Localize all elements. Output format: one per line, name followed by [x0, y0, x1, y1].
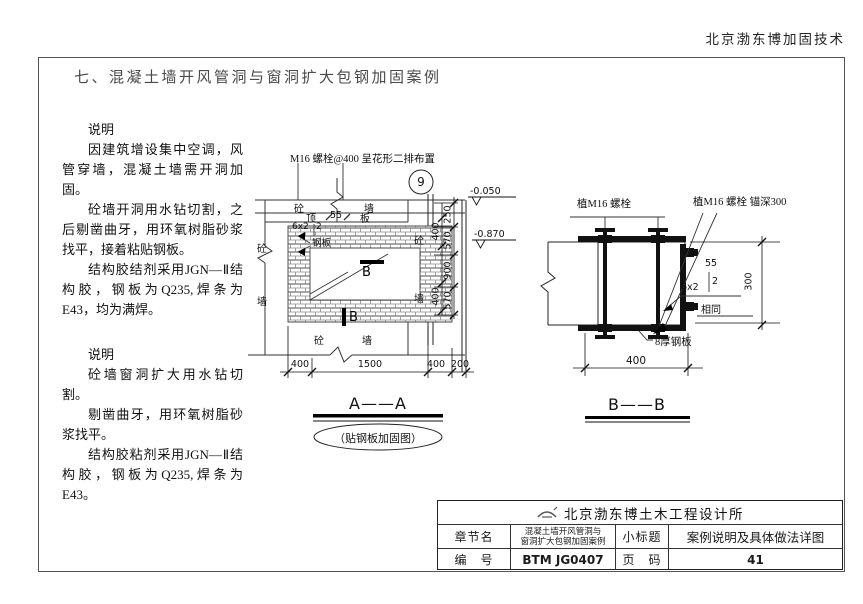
anchor-bolt-note-right: 植M16 螺栓 锚深300: [693, 194, 786, 209]
grid-bubble-9: 9: [414, 175, 428, 189]
section-b-letter-top: B: [362, 265, 371, 280]
plate-thickness-note: 8厚钢板: [655, 334, 692, 349]
section-b-title-underline: [585, 416, 690, 422]
break-line-left: [541, 242, 555, 325]
section-b-letter-bottom: B: [349, 310, 358, 325]
header-brand: 北京渤东博加固技术: [706, 28, 846, 48]
dim-right-900: 900: [443, 256, 454, 286]
label-concrete-band: 砼: [294, 200, 304, 215]
label-slab-right: 板: [360, 210, 370, 225]
section-a-title: A——A: [328, 394, 428, 413]
leader-lines: [570, 213, 753, 340]
elevation-mid: -0.870: [474, 229, 505, 240]
bolt-arrangement-note: M16 螺栓@400 呈花形二排布置: [290, 151, 435, 166]
page-title: 七、混凝土墙开风管洞与窗洞扩大包钢加固案例: [74, 66, 442, 87]
elevation-top: -0.050: [470, 186, 501, 197]
bottom-dimension-lines: [280, 326, 474, 378]
company-name: 北京渤东博土木工程设计所: [564, 503, 744, 523]
label-wall-left: 墙: [257, 293, 267, 308]
subtitle-label: 小标题: [616, 525, 669, 548]
dim-bottom-1500: 1500: [348, 359, 392, 370]
weld-count-b: 2: [712, 276, 718, 287]
label-concrete-bottom: 砼: [314, 332, 324, 347]
weld-same-note: 相同: [701, 301, 721, 316]
dim-bottom-400: 400: [621, 355, 651, 367]
label-steel-plate: 钢板: [312, 235, 331, 249]
weld-spec-a: 6x2: [292, 222, 309, 232]
notes2-paragraph-1: 砼墙窗洞扩大用水钻切割。: [62, 365, 243, 405]
notes2-heading: 说明: [62, 345, 243, 365]
section-a-drawing: M16 螺栓@400 呈花形二排布置 9 砼 墙 顶 55 板 6x2 2 钢板…: [248, 148, 518, 468]
chapter-value: 混凝土墙开风管洞与 窗洞扩大包钢加固案例: [511, 525, 616, 548]
dim-right-570a: 570: [443, 226, 454, 256]
dim-55: 55: [330, 210, 342, 221]
company-logo-icon: [536, 506, 558, 520]
dim-right-570b: 570: [443, 286, 454, 316]
notes1-paragraph-2: 砼墙开洞用水钻切割，之后剔凿曲牙，用环氧树脂砂浆找平，接着粘贴钢板。: [62, 200, 243, 260]
dim-right-400b: 400: [431, 282, 442, 312]
title-block-row-number: 编 号 BTM JG0407 页 码 41: [438, 549, 842, 570]
notes1-heading: 说明: [62, 120, 243, 140]
notes-block-1: 说明 因建筑增设集中空调，风管穿墙，混凝土墙需开洞加固。 砼墙开洞用水钻切割，之…: [62, 120, 243, 320]
label-wall-bottom: 墙: [362, 332, 372, 347]
subtitle-value: 案例说明及具体做法详图: [669, 525, 842, 548]
title-block: 北京渤东博土木工程设计所 章节名 混凝土墙开风管洞与 窗洞扩大包钢加固案例 小标…: [437, 500, 843, 570]
weld-length-55: 55: [705, 258, 717, 269]
label-wall-right: 墙: [414, 290, 424, 305]
page-label: 页 码: [616, 549, 669, 570]
section-b-title: B——B: [587, 395, 687, 414]
weld-spec-b: 6x2: [681, 282, 699, 293]
page-value: 41: [669, 549, 842, 570]
label-concrete-right: 砼: [414, 232, 424, 247]
section-b-linework: [535, 190, 835, 425]
number-label: 编 号: [438, 549, 511, 570]
notes1-paragraph-3: 结构胶结剂采用JGN—Ⅱ结构胶，钢板为Q235,焊条为E43，均为满焊。: [62, 260, 243, 320]
weld-count-a: 2: [316, 222, 322, 232]
label-concrete-left: 砼: [257, 240, 267, 255]
wall-section-outline: [541, 242, 685, 325]
chapter-value-line2: 窗洞扩大包钢加固案例: [520, 537, 605, 547]
dim-right-400a: 400: [431, 217, 442, 247]
notes2-paragraph-3: 结构胶粘剂采用JGN—Ⅱ结构胶，钢板为Q235,焊条为E43。: [62, 445, 243, 505]
dim-bottom-400b: 400: [424, 359, 448, 370]
notes-block-2: 说明 砼墙窗洞扩大用水钻切割。 剔凿曲牙，用环氧树脂砂浆找平。 结构胶粘剂采用J…: [62, 345, 243, 505]
section-b-drawing: 植M16 螺栓 植M16 螺栓 锚深300 55 2 6x2 相同 300 8厚…: [535, 190, 835, 425]
bolt-leader-lines: [298, 163, 343, 200]
dim-bottom-400a: 400: [288, 359, 312, 370]
dim-right-300: 300: [744, 267, 755, 297]
chapter-label: 章节名: [438, 525, 511, 548]
section-a-subtitle: （贴钢板加固图）: [316, 430, 440, 446]
title-block-company-row: 北京渤东博土木工程设计所: [438, 501, 842, 525]
number-value: BTM JG0407: [511, 549, 616, 570]
anchor-bolt-note-left: 植M16 螺栓: [577, 196, 631, 211]
notes2-paragraph-2: 剔凿曲牙，用环氧树脂砂浆找平。: [62, 405, 243, 445]
steel-plates-and-bolts: [578, 228, 698, 339]
title-block-row-chapter: 章节名 混凝土墙开风管洞与 窗洞扩大包钢加固案例 小标题 案例说明及具体做法详图: [438, 525, 842, 549]
dim-bottom-200: 200: [448, 359, 472, 370]
notes1-paragraph-1: 因建筑增设集中空调，风管穿墙，混凝土墙需开洞加固。: [62, 140, 243, 200]
drawing-sheet-page: { "header": { "brand": "北京渤东博加固技术" }, "p…: [0, 0, 863, 604]
